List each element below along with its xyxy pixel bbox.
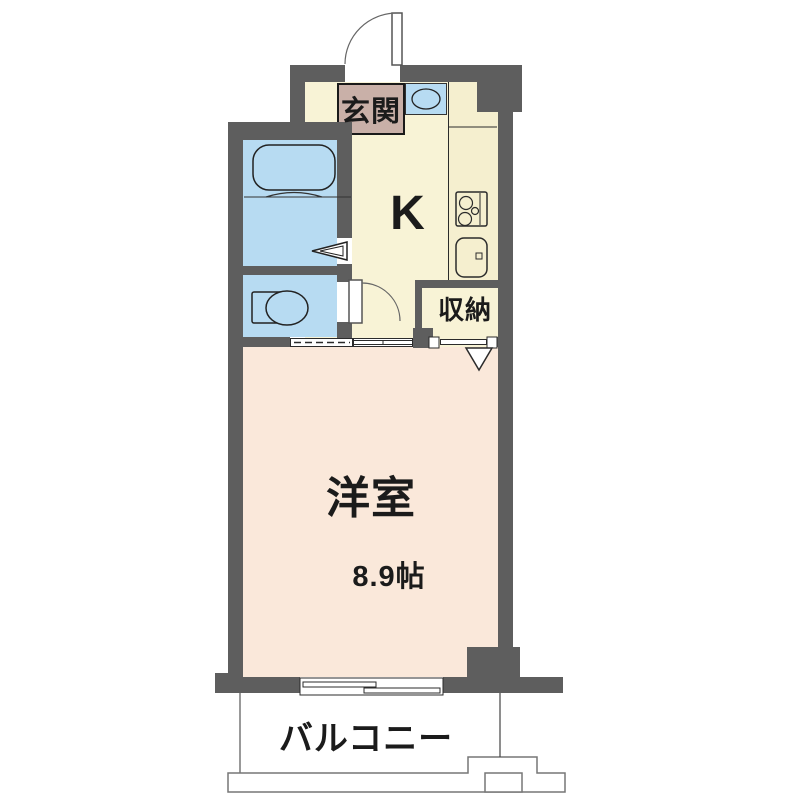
genkan-label: 玄関 [337, 83, 405, 135]
wall-pillar-bottom-right [467, 647, 520, 677]
balcony-slab [228, 757, 565, 792]
balcony-partition-tab [485, 773, 522, 792]
kitchen-label-text: K [390, 186, 426, 241]
wall-bath-toilet-divider [243, 266, 352, 275]
entrance-door-arc [345, 13, 397, 64]
sliding-door-opening [353, 338, 413, 347]
storage-label-text: 収納 [438, 290, 492, 327]
wall-top-left [290, 65, 345, 82]
floor-plan: 玄関 K 収納 洋室 8.9帖 バルコニー [0, 0, 800, 800]
wall-top-right-corner-block [477, 82, 522, 112]
toilet-door-gap [337, 282, 352, 322]
kitchen-label: K [383, 188, 433, 238]
genkan-label-text: 玄関 [341, 88, 401, 130]
western-room-label-text: 洋室 [326, 462, 416, 526]
entrance-door-leaf [392, 13, 402, 65]
bathroom-floor [243, 140, 352, 267]
window-frame [300, 678, 443, 695]
window-sash-right [364, 688, 440, 693]
wall-toilet-bottom [228, 337, 290, 347]
wall-bath-kitchen-upper [337, 140, 352, 238]
bathroom-folding-door-gap [337, 238, 352, 264]
wall-bottom-right-segment [443, 677, 563, 693]
wall-top-right [400, 65, 522, 82]
toilet-room-floor [243, 275, 352, 337]
balcony-label-text: バルコニー [279, 711, 453, 760]
wall-storage-top [415, 280, 513, 288]
wall-bathroom-top [228, 122, 352, 140]
western-room-size-label: 8.9帖 [309, 556, 469, 592]
wall-left [228, 122, 243, 693]
balcony-label: バルコニー [246, 714, 486, 756]
western-room-label: 洋室 [291, 468, 451, 520]
wall-right [498, 112, 513, 647]
wall-storage-bottom-right [497, 337, 513, 347]
western-room-size-text: 8.9帖 [352, 553, 425, 595]
storage-label: 収納 [417, 292, 513, 324]
washbasin-area [405, 83, 447, 115]
open-passage-dashed [290, 338, 353, 347]
storage-opening [440, 339, 487, 345]
window-sash-left [303, 682, 376, 687]
